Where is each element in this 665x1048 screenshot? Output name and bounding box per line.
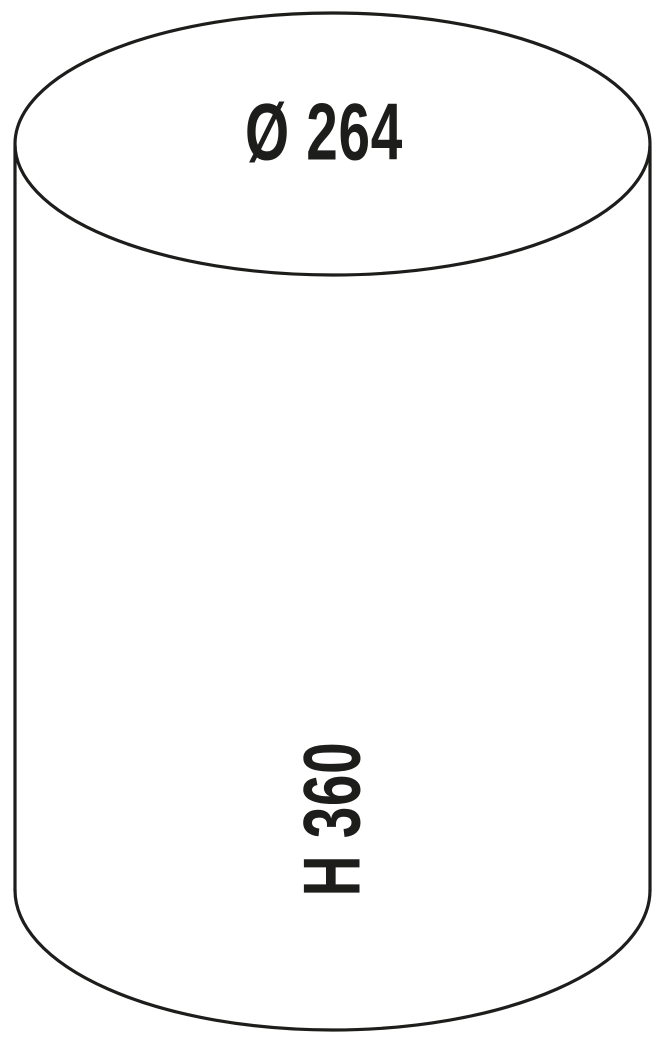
diameter-label: Ø 264	[245, 93, 403, 174]
cylinder-bottom-arc	[15, 890, 650, 1030]
height-label: H 360	[293, 742, 374, 897]
cylinder-dimension-diagram: Ø 264 H 360	[0, 0, 665, 1048]
